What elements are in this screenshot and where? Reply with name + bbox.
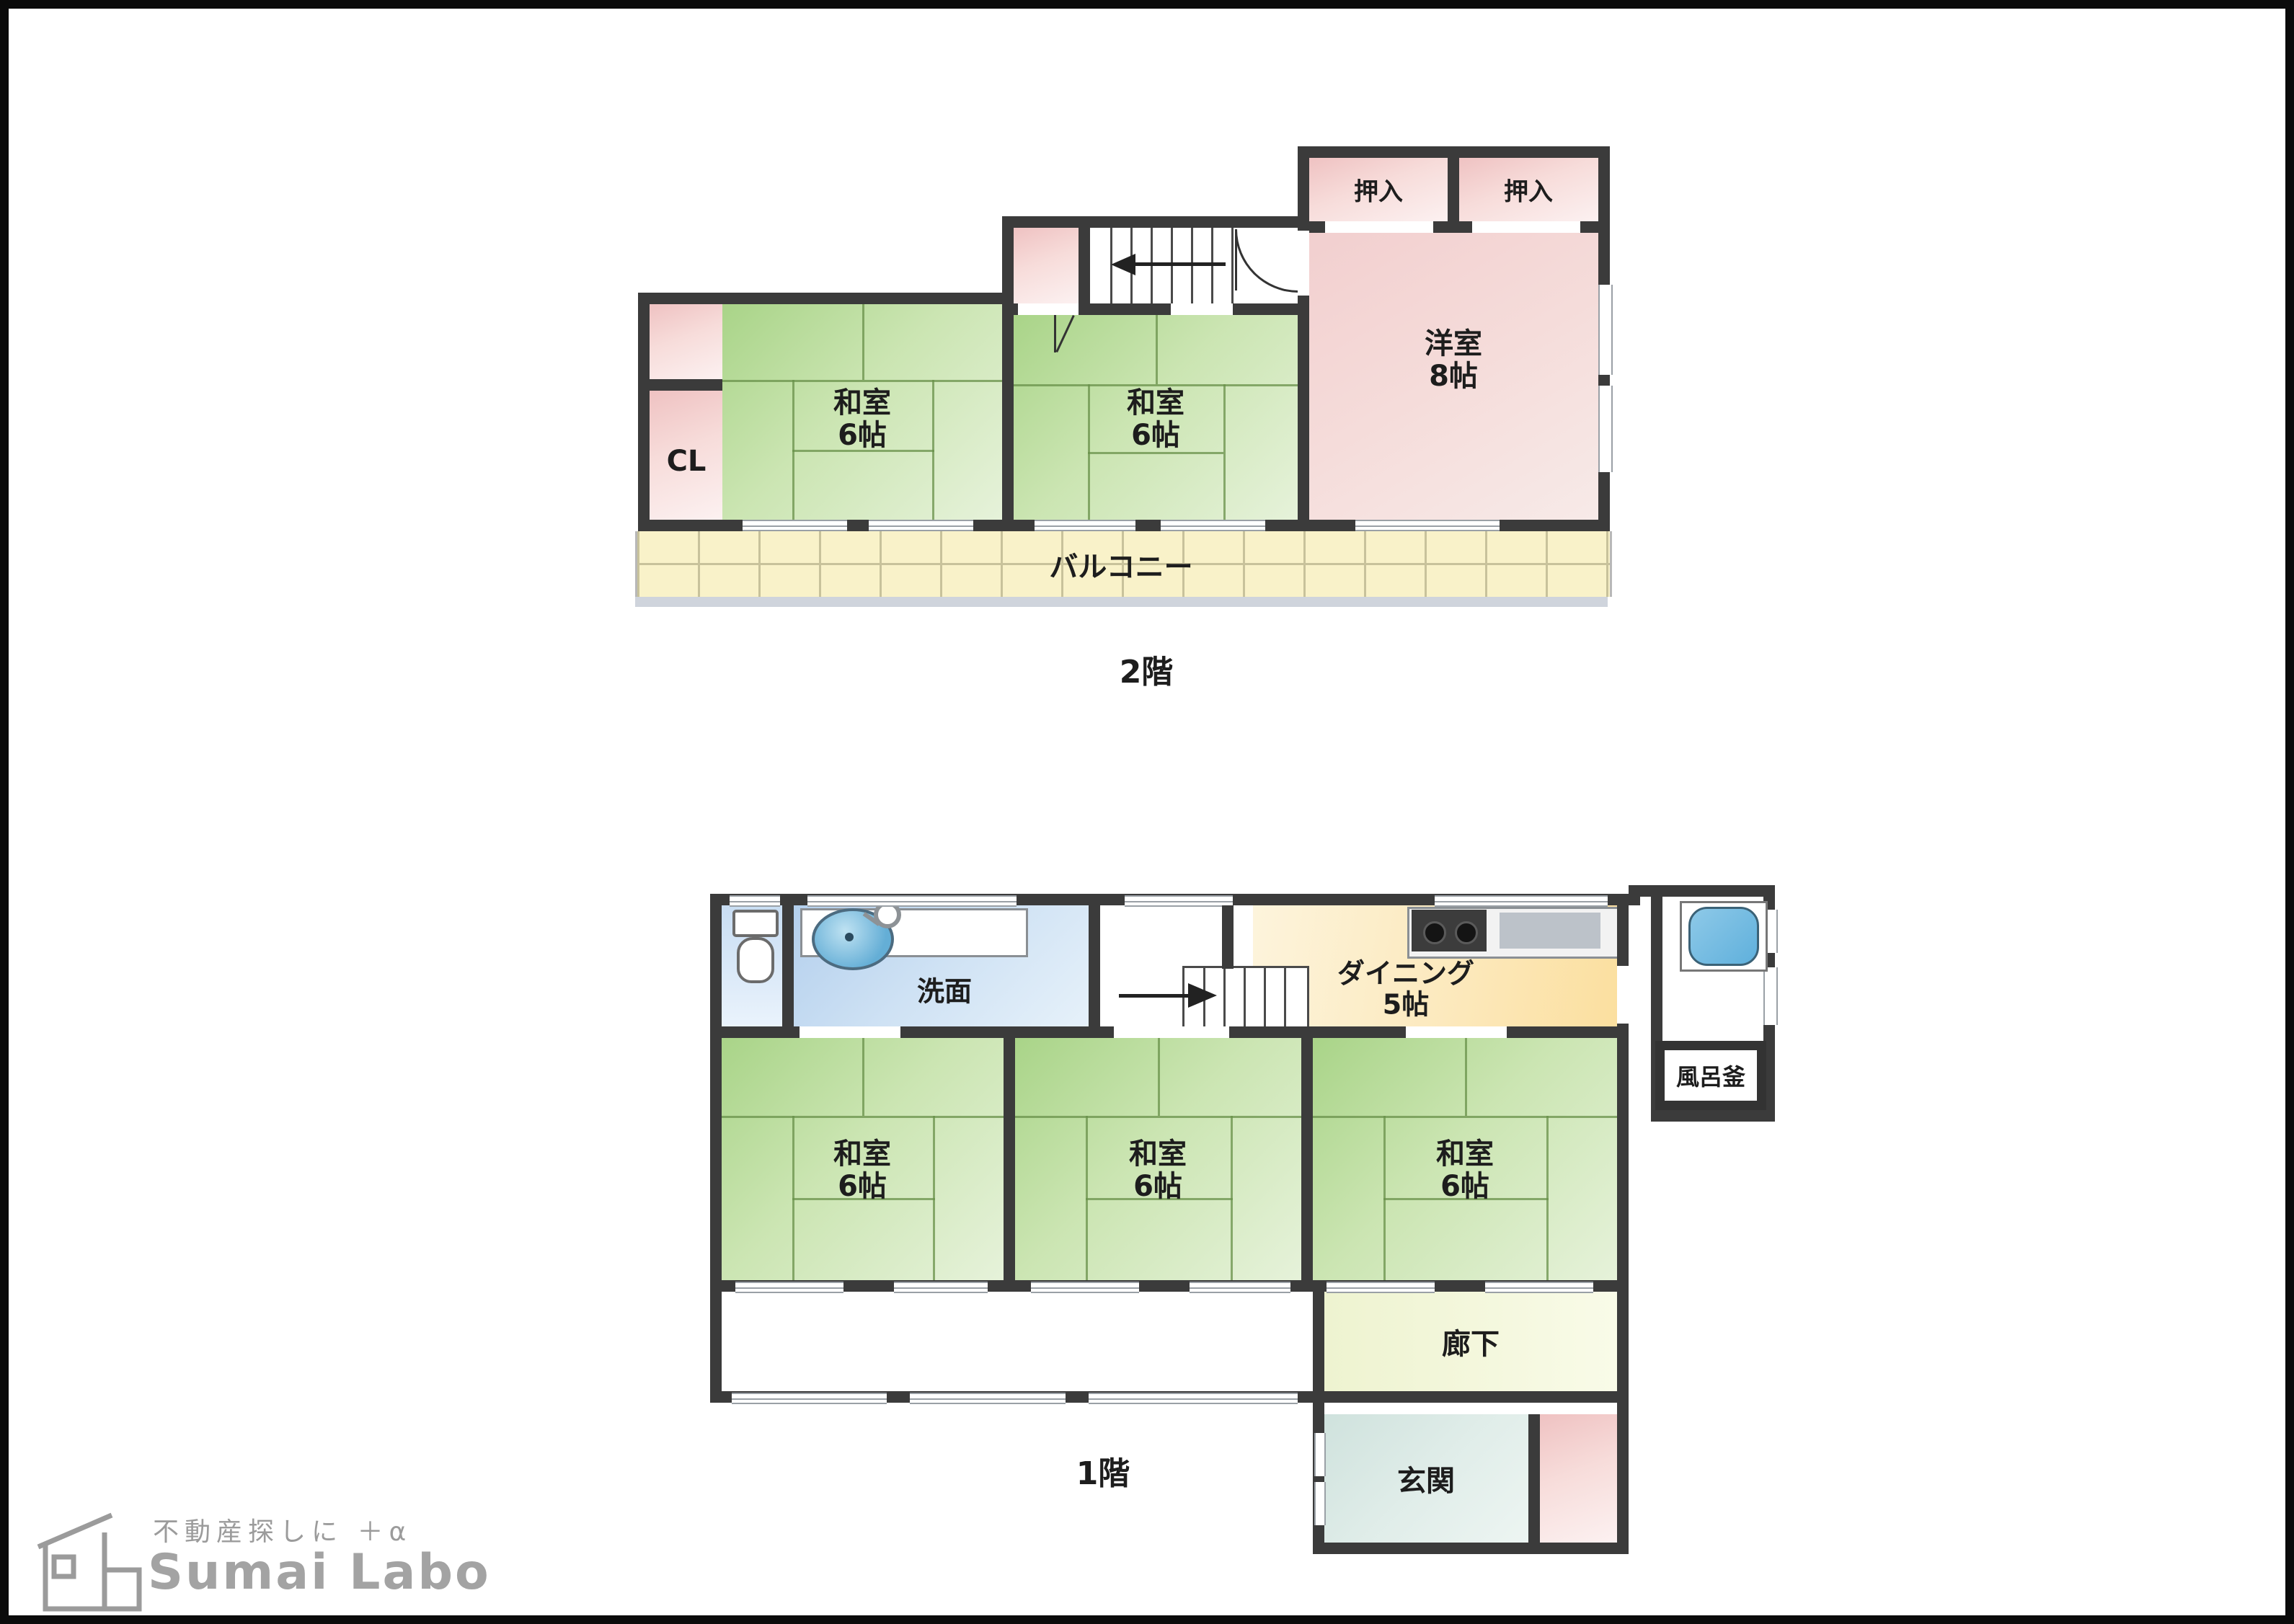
door-opening (1617, 966, 1629, 1024)
sliding-door (1485, 1282, 1593, 1293)
stair-tread (1284, 968, 1286, 1029)
window-line (730, 901, 780, 902)
tatami-line (1088, 452, 1223, 454)
window (1355, 520, 1500, 531)
door-opening (1406, 1026, 1507, 1038)
wall (1617, 894, 1629, 1554)
room-size: 6帖 (1129, 1171, 1187, 1203)
tatami-line (722, 1116, 1004, 1118)
room-name: 和室 (1436, 1138, 1494, 1171)
room-name: 和室 (833, 1138, 891, 1171)
wall (1313, 1292, 1324, 1403)
window-line (1125, 901, 1233, 902)
room-pink-corner (650, 304, 722, 379)
stair-down-arrow (1135, 262, 1226, 266)
door-leaf (1054, 315, 1056, 352)
tatami-line (722, 380, 1002, 382)
window-line (869, 525, 973, 527)
wall (650, 379, 722, 391)
tatami-line (1015, 1116, 1301, 1118)
floorplan-canvas: 押入 押入 洋室 8帖 和室 6帖 和室 6帖 CL バルコニー 2階 (0, 0, 2294, 1624)
room-label-yoshitsu: 洋室 8帖 (1425, 328, 1482, 393)
window-line (732, 1398, 887, 1400)
wall (1089, 905, 1100, 1026)
wall (1528, 1414, 1540, 1543)
wall (638, 293, 1014, 304)
window-line (910, 1398, 1066, 1400)
tatami-line (1313, 1116, 1617, 1118)
room-label-furogama: 風呂釜 (1676, 1059, 1745, 1092)
stair-up-arrow (1119, 994, 1191, 998)
room-size: 6帖 (1436, 1171, 1494, 1203)
room-size: 6帖 (1127, 420, 1184, 452)
window-line (1031, 1287, 1139, 1289)
tatami-line (862, 1038, 864, 1116)
room-size: 6帖 (833, 420, 891, 452)
wall (1222, 905, 1234, 969)
window (1089, 1393, 1298, 1404)
wall (710, 894, 722, 1403)
stair-tread (1223, 968, 1226, 1029)
room-size: 6帖 (833, 1171, 891, 1203)
logo-brand: Sumai Labo (148, 1544, 491, 1601)
genkan-side-closet (1540, 1414, 1617, 1543)
sink-drain-dot (845, 933, 854, 941)
window (869, 520, 973, 531)
sliding-door (1031, 1282, 1139, 1293)
stair-tread (1231, 228, 1234, 303)
toilet-icon-bowl (737, 937, 774, 983)
kitchen-sink (1500, 913, 1600, 949)
stove-burner (1455, 921, 1478, 944)
wall (1309, 221, 1598, 233)
sliding-door (735, 1282, 843, 1293)
balcony-edge (635, 597, 1608, 607)
door-leaf (1235, 229, 1237, 290)
wall (782, 905, 794, 1026)
room-label-washitsu-1f-c: 和室 6帖 (1436, 1138, 1494, 1203)
stair-tread (1264, 968, 1266, 1029)
window-line (1089, 1398, 1298, 1400)
room-label-oshiire-right: 押入 (1504, 172, 1553, 208)
window (1435, 895, 1608, 907)
stair-tread (1244, 968, 1246, 1029)
entrance-door (1314, 1433, 1326, 1476)
window (730, 895, 780, 907)
house-annex (105, 1570, 139, 1609)
window-line (735, 1287, 843, 1289)
wall (710, 1026, 1629, 1038)
room-size: 5帖 (1337, 989, 1474, 1020)
wall (1313, 1403, 1324, 1554)
wall (1313, 1391, 1629, 1403)
stove-icon (1412, 910, 1487, 951)
wall (1651, 885, 1775, 897)
house-logo-icon (32, 1501, 148, 1616)
floor1-caption: 1階 (1076, 1447, 1130, 1494)
wall (1004, 1038, 1015, 1292)
room-name: 和室 (1129, 1138, 1187, 1171)
roof-line (38, 1515, 112, 1547)
window (1161, 520, 1265, 531)
window-line (1327, 1287, 1435, 1289)
wall (1651, 1110, 1775, 1122)
door-opening (1325, 221, 1433, 233)
entrance-door (1314, 1482, 1326, 1525)
wall (1002, 216, 1014, 531)
tatami-line (1158, 1038, 1160, 1116)
window (910, 1393, 1066, 1404)
wall (1298, 146, 1610, 158)
room-label-genkan: 玄関 (1397, 1457, 1455, 1499)
room-name: 和室 (833, 387, 891, 420)
room-label-senmen: 洗面 (917, 969, 972, 1009)
window (1125, 895, 1233, 907)
tatami-line (1223, 384, 1226, 520)
wall (1313, 1543, 1629, 1554)
wall (1448, 158, 1459, 221)
wall (1002, 216, 1309, 228)
toilet-icon (732, 910, 779, 937)
room-label-washitsu-2f-right: 和室 6帖 (1127, 387, 1184, 452)
wall (638, 293, 650, 531)
stair-down-arrow-head (1111, 254, 1135, 275)
window (732, 1393, 887, 1404)
window (1035, 520, 1135, 531)
stair-landing (1014, 228, 1079, 303)
tatami-line (862, 304, 864, 380)
floor2-caption: 2階 (1120, 646, 1174, 692)
room-label-washitsu-1f-b: 和室 6帖 (1129, 1138, 1187, 1203)
wall (1079, 228, 1090, 303)
door-opening (800, 1026, 900, 1038)
window (807, 895, 1017, 907)
window-line (1435, 901, 1608, 902)
window-line (743, 525, 847, 527)
room-name: 洋室 (1425, 328, 1482, 360)
wall (710, 1280, 1629, 1292)
room-size: 8帖 (1425, 360, 1482, 393)
wall (638, 520, 1610, 531)
balcony-label: バルコニー (1049, 543, 1192, 585)
window-line (1035, 525, 1135, 527)
logo-tagline: 不動産探しに ＋α (153, 1511, 412, 1548)
window-line (1161, 525, 1265, 527)
door-opening (1472, 221, 1580, 233)
wall (1002, 303, 1309, 315)
window-line (807, 901, 1017, 902)
bathtub-icon (1688, 907, 1759, 966)
wall (710, 1391, 1324, 1403)
door-opening (1298, 231, 1309, 296)
wall (1598, 146, 1610, 531)
stair-up-arrow-head (1188, 983, 1217, 1008)
sliding-door (894, 1282, 988, 1293)
door-opening (1171, 303, 1233, 315)
window-line (894, 1287, 988, 1289)
tatami-line (1465, 1038, 1467, 1116)
room-label-rouka: 廊下 (1442, 1321, 1500, 1362)
room-name: ダイニング (1337, 958, 1474, 989)
door-opening (1114, 1026, 1229, 1038)
room-label-cl: CL (667, 445, 707, 478)
room-name: 和室 (1127, 387, 1184, 420)
window (1598, 285, 1613, 375)
wall (1301, 1038, 1313, 1292)
room-label-washitsu-1f-a: 和室 6帖 (833, 1138, 891, 1203)
tatami-line (1156, 315, 1158, 384)
room-label-oshiire-left: 押入 (1354, 172, 1403, 208)
stove-burner (1423, 921, 1446, 944)
window (743, 520, 847, 531)
wall (1298, 146, 1309, 531)
room-label-dining: ダイニング 5帖 (1337, 958, 1474, 1019)
sliding-door (1190, 1282, 1290, 1293)
window (1598, 386, 1613, 472)
wall (710, 894, 1640, 905)
window-line (1190, 1287, 1290, 1289)
window-line (1355, 525, 1500, 527)
room-label-washitsu-2f-left: 和室 6帖 (833, 387, 891, 452)
window-line (1485, 1287, 1593, 1289)
window (1763, 967, 1778, 1025)
door-opening (1018, 303, 1079, 315)
house-window (54, 1557, 74, 1576)
sliding-door (1327, 1282, 1435, 1293)
